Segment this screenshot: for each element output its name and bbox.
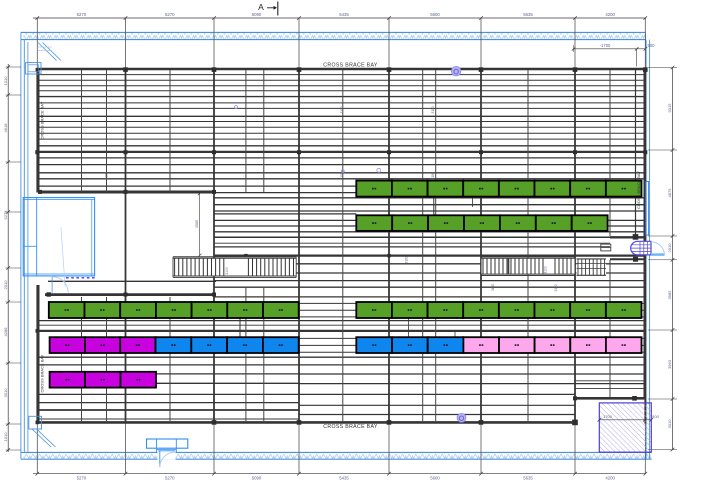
svg-text:500: 500 [652, 414, 659, 419]
svg-text:1700: 1700 [603, 414, 613, 419]
svg-text:2010: 2010 [667, 243, 672, 253]
svg-text:3100: 3100 [431, 106, 435, 113]
svg-text:3100: 3100 [405, 256, 409, 263]
svg-text:CROSS BRACE BAY: CROSS BRACE BAY [40, 101, 45, 139]
svg-text:3100: 3100 [554, 284, 558, 291]
svg-text:4875: 4875 [667, 188, 672, 198]
svg-text:CROSS BRACE BAY: CROSS BRACE BAY [323, 63, 378, 69]
svg-text:5270: 5270 [165, 12, 175, 17]
svg-text:5600: 5600 [430, 475, 440, 480]
svg-text:500: 500 [648, 43, 656, 48]
svg-text:3100: 3100 [225, 267, 229, 275]
svg-text:5270: 5270 [165, 475, 175, 480]
svg-text:3960: 3960 [667, 359, 672, 369]
svg-text:4288: 4288 [3, 327, 8, 337]
svg-text:1010: 1010 [3, 76, 8, 86]
svg-text:3100: 3100 [491, 284, 495, 291]
svg-text:3100: 3100 [340, 172, 344, 179]
svg-text:CROSS BRACE BAY: CROSS BRACE BAY [323, 424, 378, 430]
svg-text:4200: 4200 [605, 475, 615, 480]
svg-text:5090: 5090 [252, 12, 262, 17]
svg-text:3100: 3100 [105, 172, 109, 179]
svg-text:CROSS BRACE BAY: CROSS BRACE BAY [40, 354, 45, 392]
svg-text:A: A [258, 2, 264, 12]
svg-text:5435: 5435 [339, 475, 349, 480]
svg-text:9015: 9015 [667, 103, 672, 113]
svg-text:5270: 5270 [77, 475, 87, 480]
svg-text:4200: 4200 [605, 12, 615, 17]
svg-text:3100: 3100 [431, 172, 435, 179]
svg-text:3100: 3100 [544, 266, 548, 274]
svg-text:5270: 5270 [77, 12, 87, 17]
svg-text:5635: 5635 [523, 12, 533, 17]
svg-text:3585: 3585 [195, 220, 199, 228]
svg-text:4618: 4618 [3, 123, 8, 133]
svg-text:3010: 3010 [667, 419, 672, 429]
svg-text:1010: 1010 [3, 432, 8, 442]
svg-text:3985: 3985 [667, 290, 672, 300]
svg-text:CROSS BRACE BAY: CROSS BRACE BAY [636, 171, 641, 209]
svg-text:5600: 5600 [430, 12, 440, 17]
svg-text:3010: 3010 [3, 388, 8, 398]
svg-text:5635: 5635 [523, 475, 533, 480]
svg-text:5090: 5090 [252, 475, 262, 480]
svg-text:3100: 3100 [340, 106, 344, 113]
svg-text:5435: 5435 [339, 12, 349, 17]
svg-text:-1700: -1700 [600, 43, 611, 48]
svg-text:2010: 2010 [3, 280, 8, 290]
svg-text:5275: 5275 [3, 210, 8, 220]
